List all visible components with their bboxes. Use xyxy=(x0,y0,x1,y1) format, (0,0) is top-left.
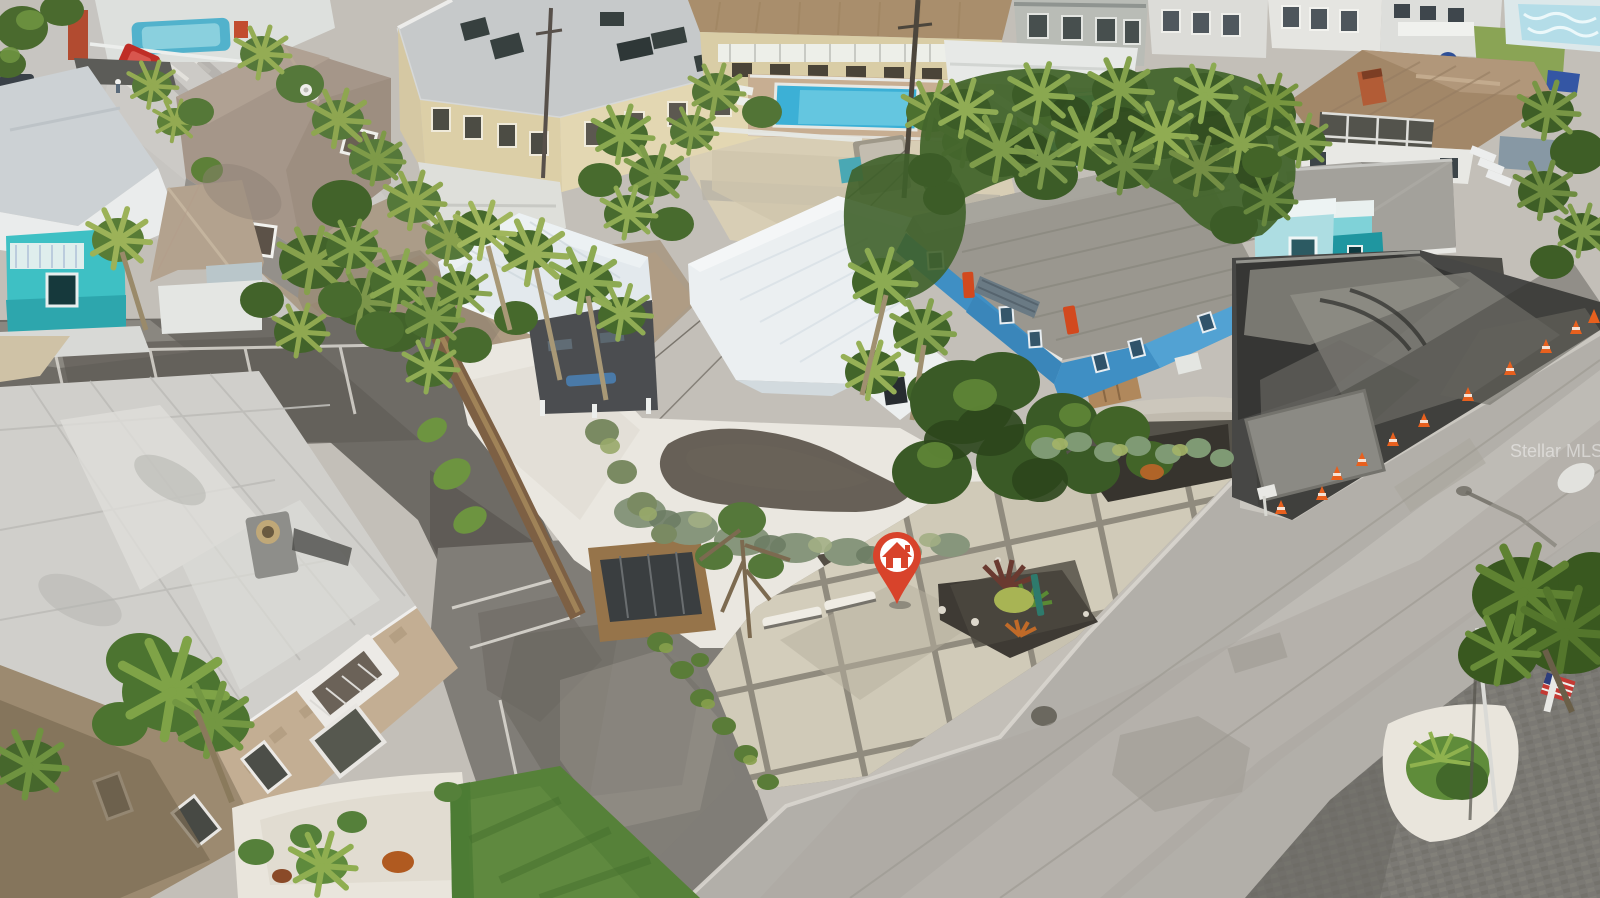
svg-text:Stellar MLS: Stellar MLS xyxy=(1510,441,1600,461)
